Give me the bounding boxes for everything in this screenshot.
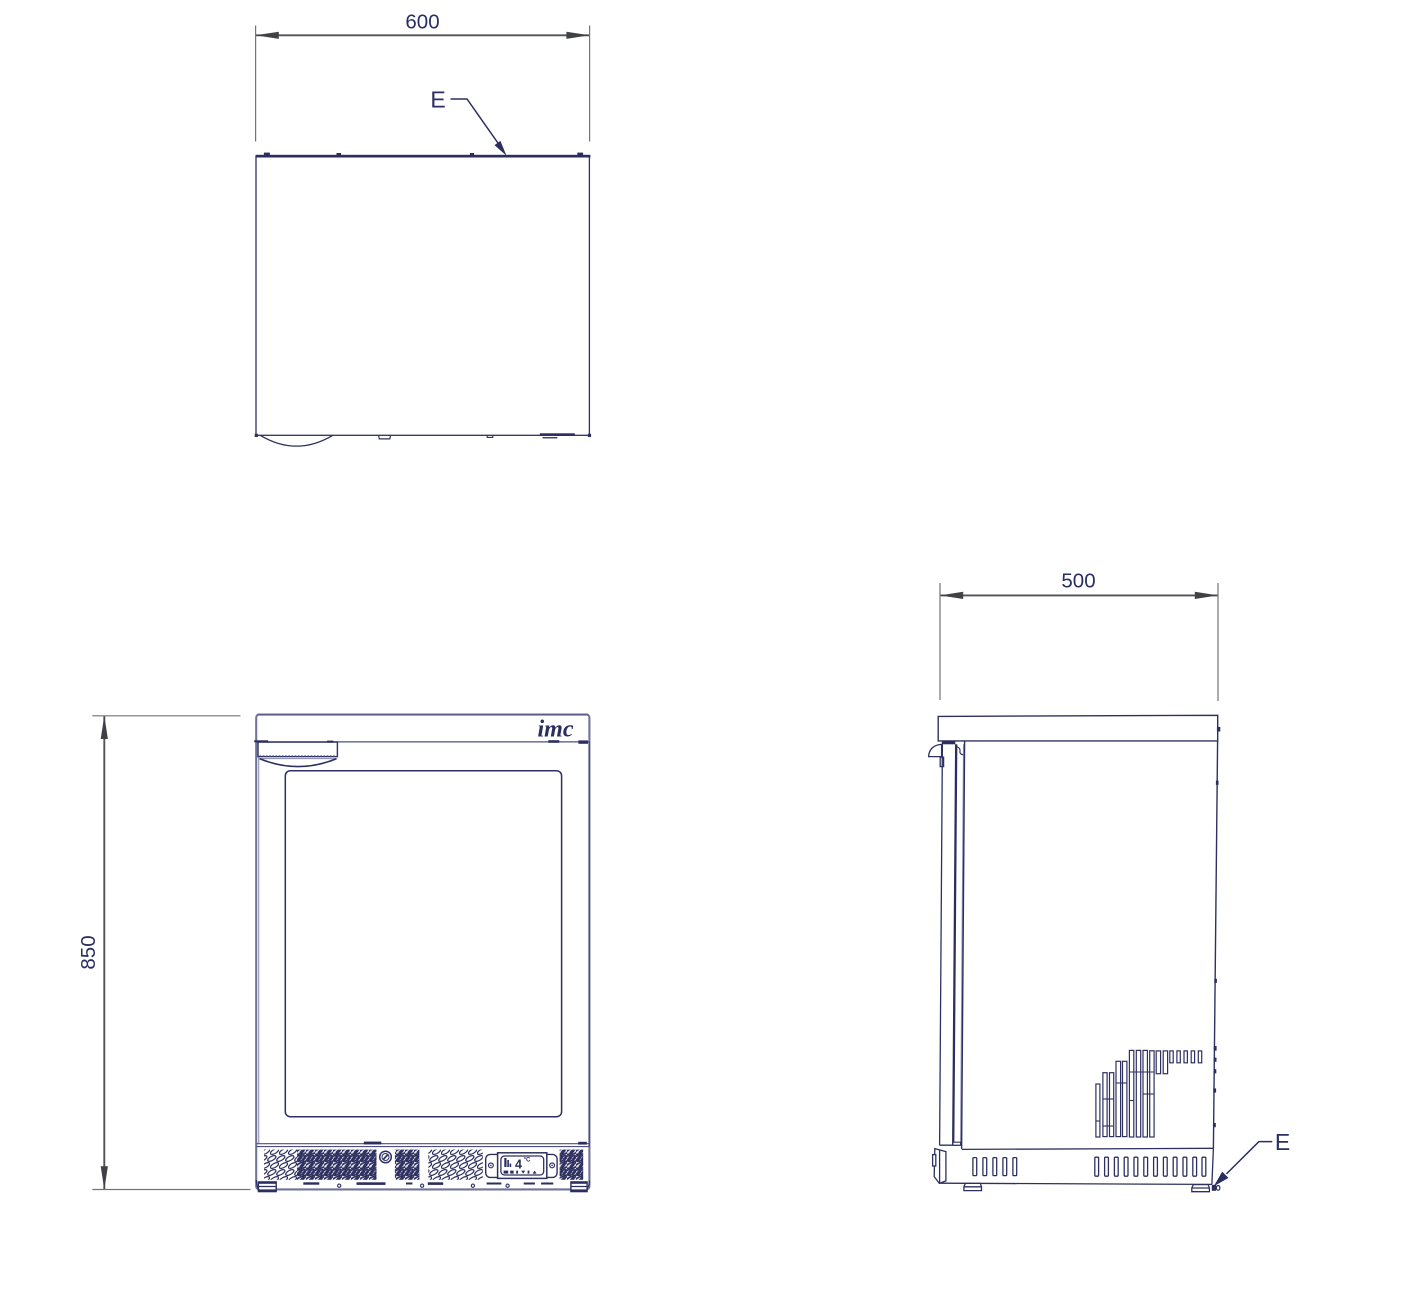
- svg-text:850: 850: [77, 935, 100, 969]
- svg-text:500: 500: [1061, 570, 1095, 593]
- svg-text:600: 600: [405, 11, 439, 34]
- svg-text:°C: °C: [524, 1158, 531, 1164]
- svg-text:4: 4: [515, 1158, 522, 1172]
- svg-text:imc: imc: [538, 717, 574, 743]
- svg-text:E: E: [1275, 1129, 1290, 1155]
- svg-text:E: E: [430, 87, 445, 113]
